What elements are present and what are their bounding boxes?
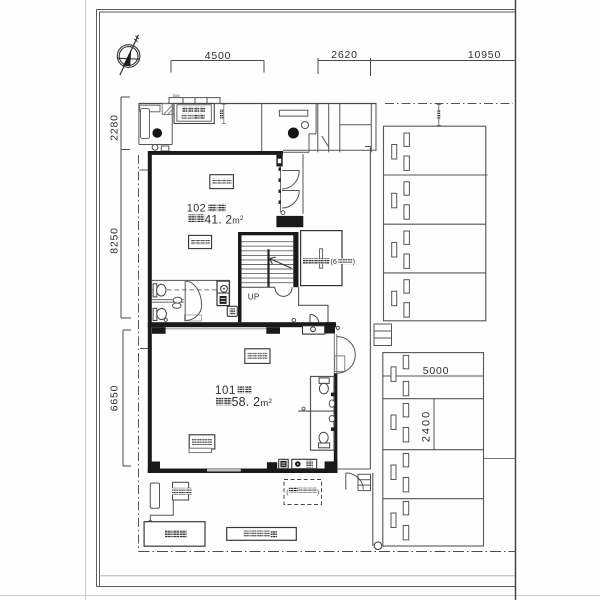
svg-text:2620: 2620 [331, 49, 358, 61]
svg-text:10950: 10950 [468, 49, 501, 61]
svg-text:8250: 8250 [109, 227, 121, 254]
svg-text:4500: 4500 [205, 50, 232, 62]
svg-text:(6: (6 [331, 257, 337, 266]
svg-text:41. 2m2: 41. 2m2 [205, 212, 244, 226]
svg-text:102: 102 [187, 202, 206, 214]
svg-text:58. 2m2: 58. 2m2 [232, 395, 273, 409]
svg-text:UP: UP [248, 293, 260, 302]
svg-text:5000: 5000 [423, 365, 450, 377]
svg-text:2400: 2400 [421, 410, 433, 442]
svg-text:(: ( [286, 489, 289, 496]
svg-text:6650: 6650 [109, 385, 121, 412]
svg-text:2000: 2000 [172, 94, 179, 98]
svg-text:): ) [317, 489, 319, 496]
svg-text:2280: 2280 [109, 114, 121, 141]
svg-text:): ) [353, 257, 355, 266]
